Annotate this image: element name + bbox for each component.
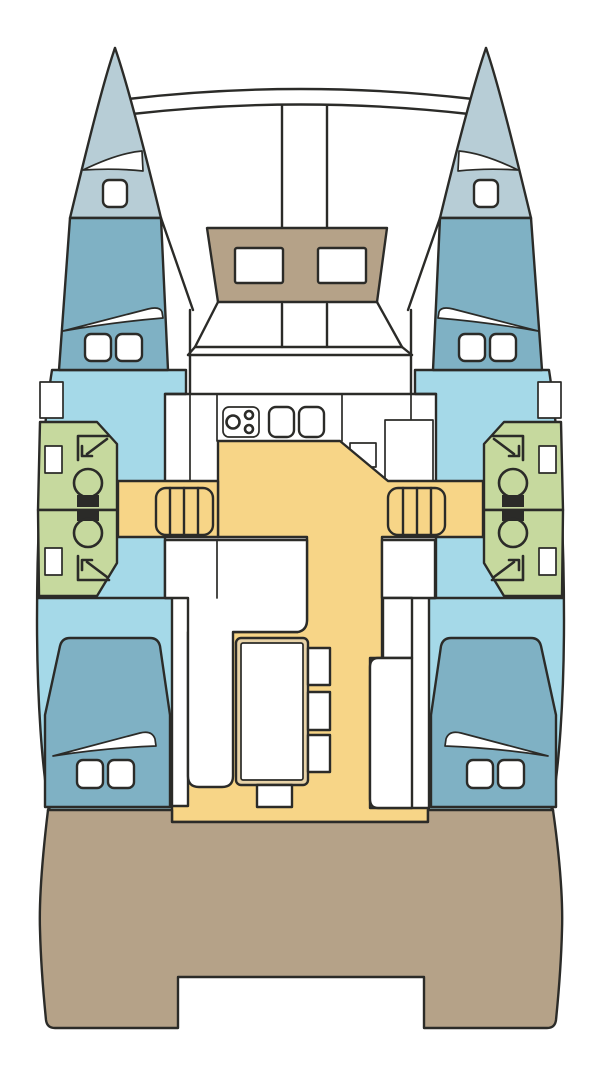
toilet-seat	[77, 495, 99, 507]
pillow	[116, 334, 142, 361]
saloon-furniture	[165, 540, 435, 808]
starboard-aft-cabin	[431, 638, 556, 807]
toilet-seat	[502, 495, 524, 507]
pillow	[490, 334, 516, 361]
saloon-bench	[370, 658, 412, 808]
pillow	[498, 760, 524, 788]
port-bow-hatch	[103, 180, 127, 207]
port-locker	[40, 382, 63, 418]
seat-line	[377, 302, 402, 347]
nav-station	[385, 420, 433, 481]
sink-right	[299, 407, 324, 437]
pillow	[85, 334, 111, 361]
stove-icon	[223, 407, 259, 437]
stove-top	[223, 407, 259, 437]
catamaran-floor-plan	[0, 0, 601, 1080]
coachroof-window-left	[235, 248, 283, 283]
port-aft-cabin	[45, 638, 170, 807]
port-bow	[70, 48, 161, 218]
pillow	[77, 760, 103, 788]
sink-left	[269, 407, 294, 437]
crossbeam-curve-aft	[132, 105, 469, 115]
starboard-forward-berth	[433, 218, 542, 370]
trampoline-area	[128, 89, 473, 228]
starboard-bow-hatch	[474, 180, 498, 207]
pillow	[108, 760, 134, 788]
foredeck-seat	[188, 228, 412, 355]
stool	[257, 785, 292, 807]
port-heads	[38, 422, 117, 596]
starboard-counter-column	[383, 598, 412, 658]
saloon-table-top	[241, 643, 303, 780]
stool	[308, 735, 330, 772]
port-forward-cabin	[59, 218, 168, 370]
floor-plan-canvas	[0, 0, 601, 1080]
foredeck-seat-lines	[188, 302, 412, 355]
starboard-heads	[484, 422, 563, 596]
stool	[308, 648, 330, 685]
pillow	[459, 334, 485, 361]
coachroof-window-right	[318, 248, 366, 283]
crossbeam-curve-forward	[128, 89, 473, 99]
port-companionway-floor	[118, 481, 218, 537]
starboard-bow	[440, 48, 531, 218]
starboard-forward-cabin	[433, 218, 542, 370]
seat-line	[195, 302, 218, 347]
pillow	[467, 760, 493, 788]
starboard-porthole-forward	[539, 446, 556, 473]
port-porthole-aft	[45, 548, 62, 575]
cockpit-deck	[40, 810, 562, 1028]
starboard-porthole-aft	[539, 548, 556, 575]
starboard-locker	[538, 382, 561, 418]
starboard-counter	[382, 540, 435, 598]
stool	[308, 692, 330, 730]
port-porthole-forward	[45, 446, 62, 473]
port-forward-berth	[59, 218, 168, 370]
